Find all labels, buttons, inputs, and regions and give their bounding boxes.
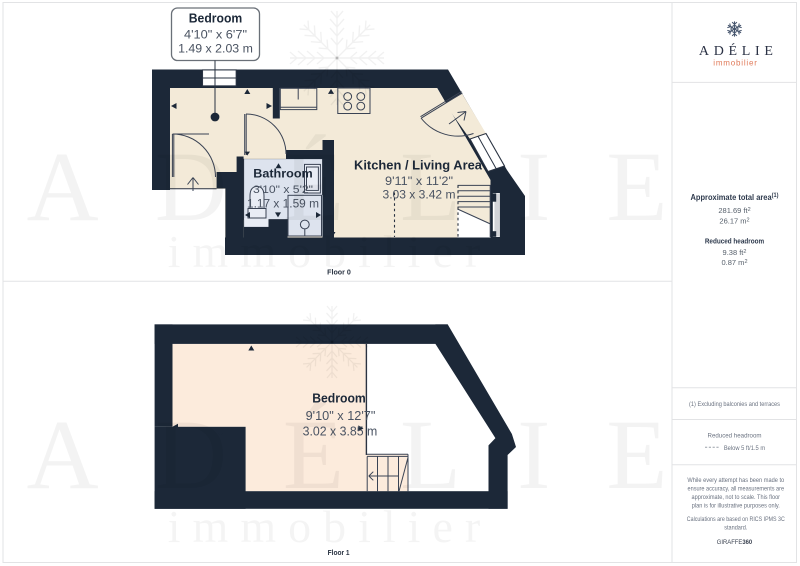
svg-text:1.49 x 2.03 m: 1.49 x 2.03 m	[178, 41, 253, 55]
svg-text:immobilier: immobilier	[168, 226, 492, 277]
svg-text:While every attempt has been m: While every attempt has been made to	[687, 477, 784, 484]
svg-text:Below 5 ft/1.5 m: Below 5 ft/1.5 m	[724, 445, 765, 452]
svg-text:plan is for illustrative purpo: plan is for illustrative purposes only.	[692, 503, 780, 510]
svg-text:Reduced headroom: Reduced headroom	[708, 432, 762, 439]
svg-text:approximate, not to scale. Thi: approximate, not to scale. This floor	[692, 494, 781, 501]
svg-text:Calculations are based on RICS: Calculations are based on RICS IPMS 3C	[687, 516, 785, 523]
svg-text:ensure accuracy, all measureme: ensure accuracy, all measurements are	[688, 486, 785, 493]
svg-text:9.38 ft2: 9.38 ft2	[723, 248, 747, 257]
svg-text:ADÉLIE: ADÉLIE	[27, 399, 724, 510]
svg-text:Bedroom: Bedroom	[189, 12, 243, 26]
svg-text:GIRAFFE360: GIRAFFE360	[717, 539, 753, 546]
svg-text:0.87 m2: 0.87 m2	[722, 258, 748, 267]
svg-text:281.69 ft2: 281.69 ft2	[718, 206, 750, 215]
svg-text:4'10" x 6'7": 4'10" x 6'7"	[184, 27, 247, 41]
svg-text:(1) Excluding balconies and te: (1) Excluding balconies and terraces	[689, 401, 781, 408]
svg-text:immobilier: immobilier	[713, 58, 757, 67]
svg-text:Reduced headroom: Reduced headroom	[705, 238, 764, 245]
svg-text:Approximate total area(1): Approximate total area(1)	[691, 193, 779, 203]
svg-text:immobilier: immobilier	[168, 501, 492, 552]
svg-text:ADÉLIE: ADÉLIE	[699, 42, 778, 59]
svg-text:26.17 m2: 26.17 m2	[719, 216, 749, 225]
svg-text:standard.: standard.	[724, 525, 747, 532]
